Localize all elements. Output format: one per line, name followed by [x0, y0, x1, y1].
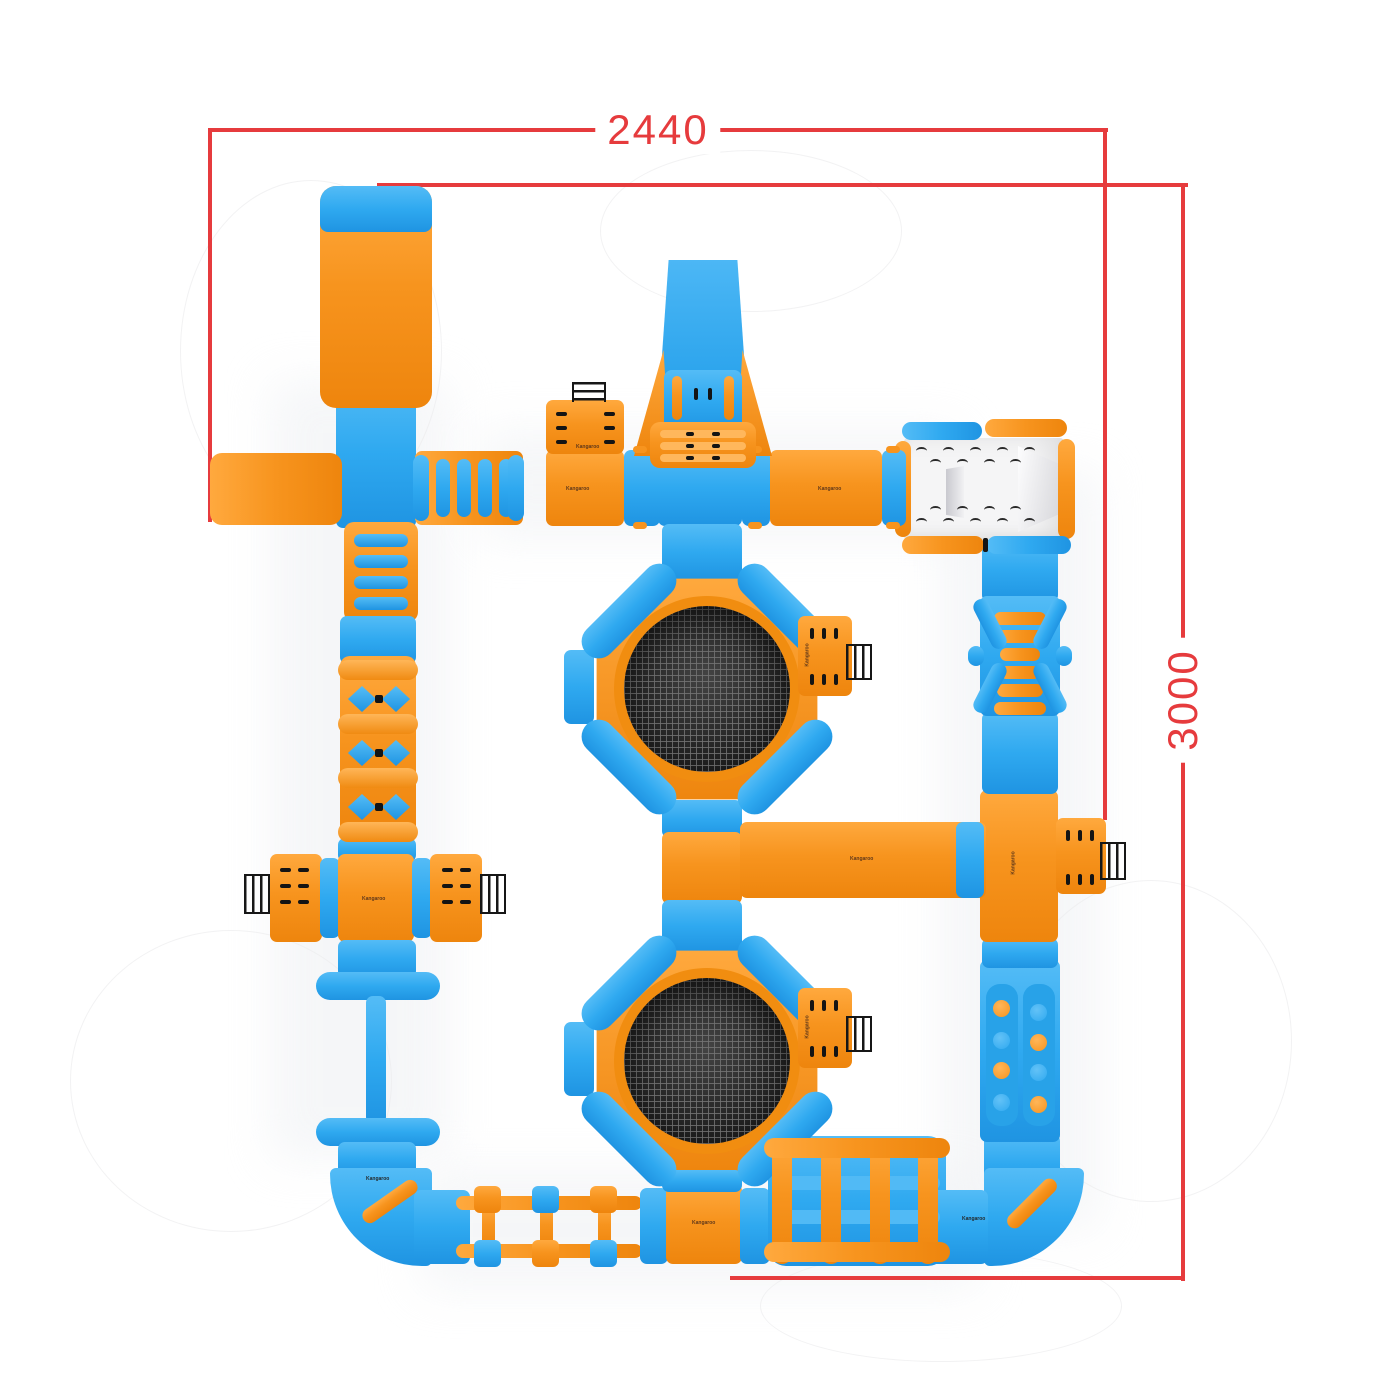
handle-mark	[1010, 506, 1021, 514]
boarding-ladder	[244, 874, 270, 914]
slide-step-mark	[712, 444, 720, 448]
water-ripple	[600, 150, 902, 312]
brand-logo: Kangaroo	[566, 486, 589, 492]
climbing-platform-right	[430, 854, 482, 942]
slide-step-mark	[712, 432, 720, 436]
handle-mark	[930, 506, 941, 514]
x-roller-tube	[994, 612, 1046, 625]
x-frame-knob	[1056, 646, 1072, 666]
climbing-hold	[298, 900, 309, 904]
boarding-ladder	[480, 874, 506, 914]
climbing-hold	[298, 868, 309, 872]
stepping-dot	[1030, 1064, 1047, 1081]
handle-mark	[1024, 447, 1035, 455]
brand-logo: Kangaroo	[366, 1176, 389, 1182]
joint-nub	[633, 446, 647, 453]
walkway-connector	[320, 858, 340, 938]
ladder-bridge-rung	[478, 459, 492, 517]
climbing-hold	[460, 884, 471, 888]
roller-gap	[375, 695, 383, 703]
climbing-hold	[280, 884, 291, 888]
bridge-node	[590, 1240, 617, 1267]
roller-gap	[375, 803, 383, 811]
trampoline-mesh	[624, 606, 790, 772]
bolster-tube	[985, 419, 1067, 437]
climbing-hold	[460, 900, 471, 904]
climbing-hold	[442, 868, 453, 872]
brand-logo: Kangaroo	[805, 643, 811, 666]
climbing-hold	[822, 1046, 826, 1057]
climbing-hold	[604, 426, 615, 430]
handle-mark	[930, 459, 941, 467]
t-bar-stem	[366, 996, 386, 1124]
stair-step	[354, 597, 408, 610]
slide-step-mark	[686, 432, 694, 436]
stair-step	[354, 576, 408, 589]
bridge-node	[474, 1240, 501, 1267]
handle-mark	[916, 447, 927, 455]
climbing-hold	[442, 900, 453, 904]
climbing-hold	[280, 900, 291, 904]
extension-line-height-top	[377, 183, 1188, 187]
joint-nub	[748, 522, 762, 529]
ladder-bridge-rung	[457, 459, 471, 517]
left-arm-walkway	[210, 453, 342, 525]
stepping-dot	[1030, 1004, 1047, 1021]
walkway-connector	[982, 938, 1058, 968]
slide-step-mark	[686, 456, 694, 460]
climbing-hold	[280, 868, 291, 872]
roller-bar	[338, 822, 418, 842]
handle-mark	[943, 518, 954, 526]
climbing-hold	[1066, 874, 1070, 885]
walkway-tile	[662, 832, 742, 904]
ladder-bridge-end	[508, 455, 524, 521]
joint-nub	[886, 522, 900, 529]
boarding-ladder	[846, 1016, 872, 1052]
climbing-hold	[556, 440, 567, 444]
climbing-hold	[822, 1000, 826, 1011]
stair-step	[354, 555, 408, 568]
bolster-tube	[902, 422, 982, 440]
climbing-hold	[834, 628, 838, 639]
climbing-hold	[810, 1046, 814, 1057]
bolster-tube	[1058, 439, 1075, 539]
climbing-hold	[822, 674, 826, 685]
climbing-hold	[556, 412, 567, 416]
bridge-node	[532, 1186, 559, 1213]
brand-logo: Kangaroo	[805, 1015, 811, 1038]
stepping-dot	[993, 1062, 1010, 1079]
climbing-hold	[460, 868, 471, 872]
slide-step-mark	[712, 456, 720, 460]
walkway-tile	[882, 450, 906, 526]
climbing-hold	[1078, 830, 1082, 841]
bridge-node	[474, 1186, 501, 1213]
climbing-hold	[1078, 874, 1082, 885]
brand-logo: Kangaroo	[692, 1220, 715, 1226]
handle-mark	[997, 518, 1008, 526]
bridge-node	[532, 1240, 559, 1267]
water-park-floor-plan: 2440 3000 Kangaroo	[0, 0, 1400, 1400]
climbing-hold	[1066, 830, 1070, 841]
octagon-stub	[564, 1022, 594, 1096]
handle-mark	[970, 518, 981, 526]
x-roller-tube	[1000, 648, 1040, 661]
ladder-bridge-rung	[436, 459, 450, 517]
climbing-hold	[298, 884, 309, 888]
handle-mark	[943, 447, 954, 455]
slide-seat-mark	[694, 388, 698, 400]
corner-elbow-right	[984, 1168, 1084, 1266]
lattice-tube-top	[764, 1138, 950, 1158]
height-dimension-label: 3000	[1159, 637, 1207, 762]
handle-mark	[916, 518, 927, 526]
roller-bar	[338, 714, 418, 734]
lattice-blue-bar	[774, 1176, 940, 1190]
handle-mark	[1010, 459, 1021, 467]
climbing-hold	[810, 1000, 814, 1011]
climbing-hold	[1090, 874, 1094, 885]
climbing-hold	[810, 628, 814, 639]
stepping-dot	[1030, 1034, 1047, 1051]
bolster-gap	[983, 538, 988, 552]
x-roller-tube	[994, 702, 1046, 715]
walkway-connector	[956, 822, 984, 898]
climbing-hold	[810, 674, 814, 685]
joint-nub	[633, 522, 647, 529]
bolster-tube	[902, 536, 984, 554]
climbing-platform-left	[270, 854, 322, 942]
brand-logo: Kangaroo	[962, 1216, 985, 1222]
slide-chute	[660, 260, 746, 384]
slide-seat-mark	[708, 388, 712, 400]
bridge-node	[590, 1186, 617, 1213]
handle-mark	[957, 459, 968, 467]
slide-grip	[672, 376, 682, 420]
handle-mark	[1024, 518, 1035, 526]
climbing-hold	[442, 884, 453, 888]
handle-mark	[957, 506, 968, 514]
brand-logo: Kangaroo	[362, 896, 385, 902]
extension-line-bottom	[730, 1276, 1185, 1280]
lattice-tube-bottom	[764, 1242, 950, 1262]
lattice-blue-bar	[774, 1210, 940, 1224]
brand-logo: Kangaroo	[576, 444, 599, 450]
slide-step	[660, 454, 746, 462]
walkway-connector	[412, 858, 432, 938]
handle-mark	[997, 447, 1008, 455]
climbing-hold	[834, 674, 838, 685]
stepping-dot	[993, 1094, 1010, 1111]
x-roller-tube	[997, 684, 1043, 697]
stepping-dot	[993, 1032, 1010, 1049]
climbing-hold	[604, 440, 615, 444]
bolster-tube	[987, 536, 1071, 554]
x-frame-knob	[968, 646, 984, 666]
handle-mark	[984, 506, 995, 514]
stepping-dot	[1030, 1096, 1047, 1113]
slide-step	[660, 442, 746, 450]
handle-mark	[984, 459, 995, 467]
octagon-stub	[564, 650, 594, 724]
roller-bar	[338, 768, 418, 788]
climbing-hold	[556, 426, 567, 430]
width-dimension-label: 2440	[595, 106, 720, 154]
walkway-tile	[640, 1188, 668, 1264]
walkway-connector	[982, 712, 1058, 794]
roller-gap	[375, 749, 383, 757]
climbing-hold	[822, 628, 826, 639]
brand-logo: Kangaroo	[818, 486, 841, 492]
slide-step	[660, 430, 746, 438]
slide-grip	[724, 376, 734, 420]
ladder-bridge-end	[413, 455, 429, 521]
handle-mark	[970, 447, 981, 455]
water-ripple	[760, 1250, 1122, 1362]
brand-logo: Kangaroo	[850, 856, 873, 862]
climbing-hold	[604, 412, 615, 416]
brand-logo: Kangaroo	[1011, 851, 1017, 874]
boarding-ladder	[1100, 842, 1126, 880]
climbing-hold	[834, 1000, 838, 1011]
stepping-dot	[993, 1000, 1010, 1017]
boarding-ladder	[572, 382, 606, 402]
joint-nub	[886, 446, 900, 453]
roller-bar	[338, 660, 418, 680]
trampoline-mesh	[624, 978, 790, 1144]
walkway-tile	[980, 790, 1058, 942]
climbing-hold	[1090, 830, 1094, 841]
climbing-hold	[834, 1046, 838, 1057]
boarding-ladder	[846, 644, 872, 680]
extension-line-right	[1103, 128, 1107, 820]
slide-tower-cap	[320, 186, 432, 232]
stair-step	[354, 534, 408, 547]
slide-step-mark	[686, 444, 694, 448]
